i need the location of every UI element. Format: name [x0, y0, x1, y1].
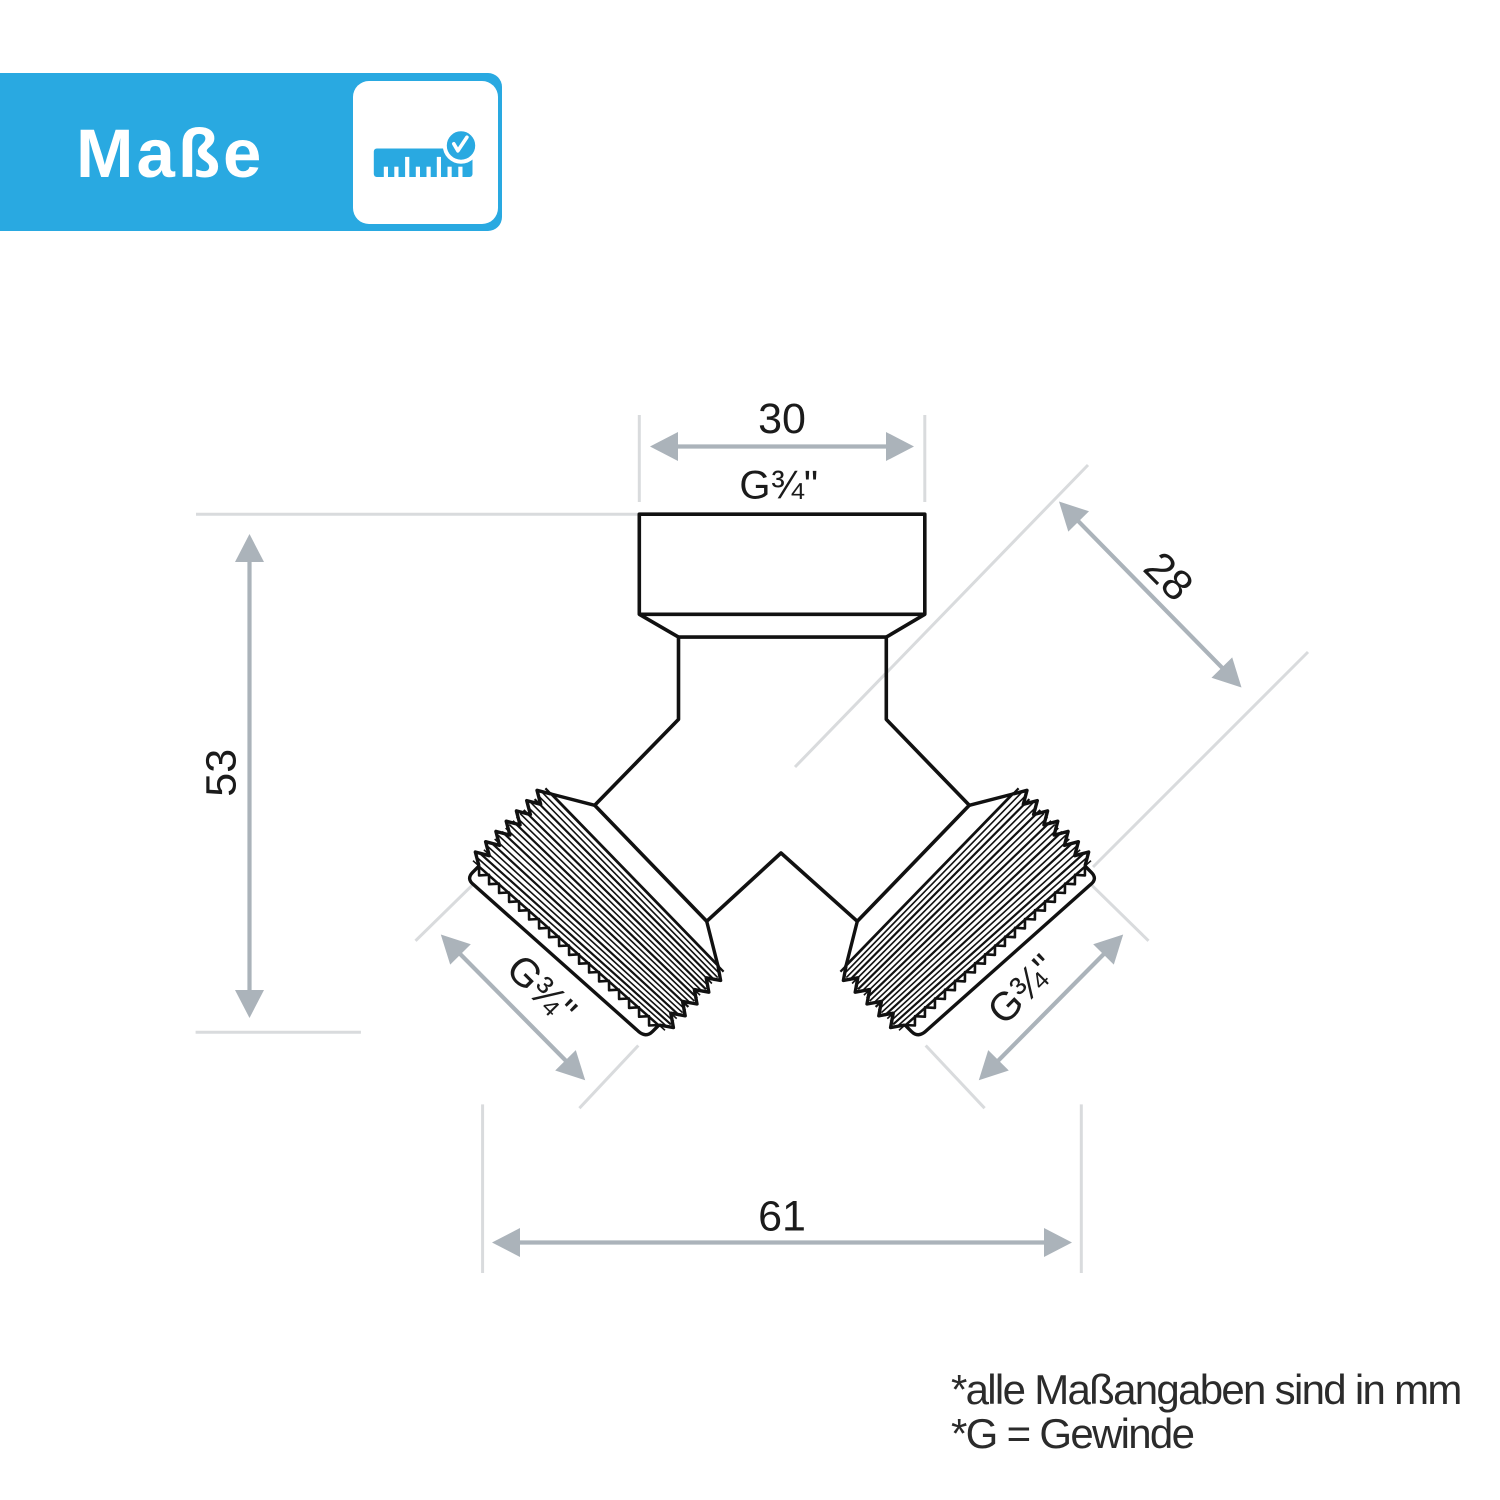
- svg-text:G¾": G¾": [739, 464, 818, 508]
- svg-text:53: 53: [198, 749, 246, 797]
- svg-text:30: 30: [758, 395, 806, 443]
- svg-text:Maße: Maße: [76, 115, 264, 192]
- svg-text:*alle Maßangaben sind in mm: *alle Maßangaben sind in mm: [951, 1366, 1461, 1413]
- svg-text:*G = Gewinde: *G = Gewinde: [951, 1410, 1194, 1457]
- svg-text:61: 61: [758, 1192, 806, 1240]
